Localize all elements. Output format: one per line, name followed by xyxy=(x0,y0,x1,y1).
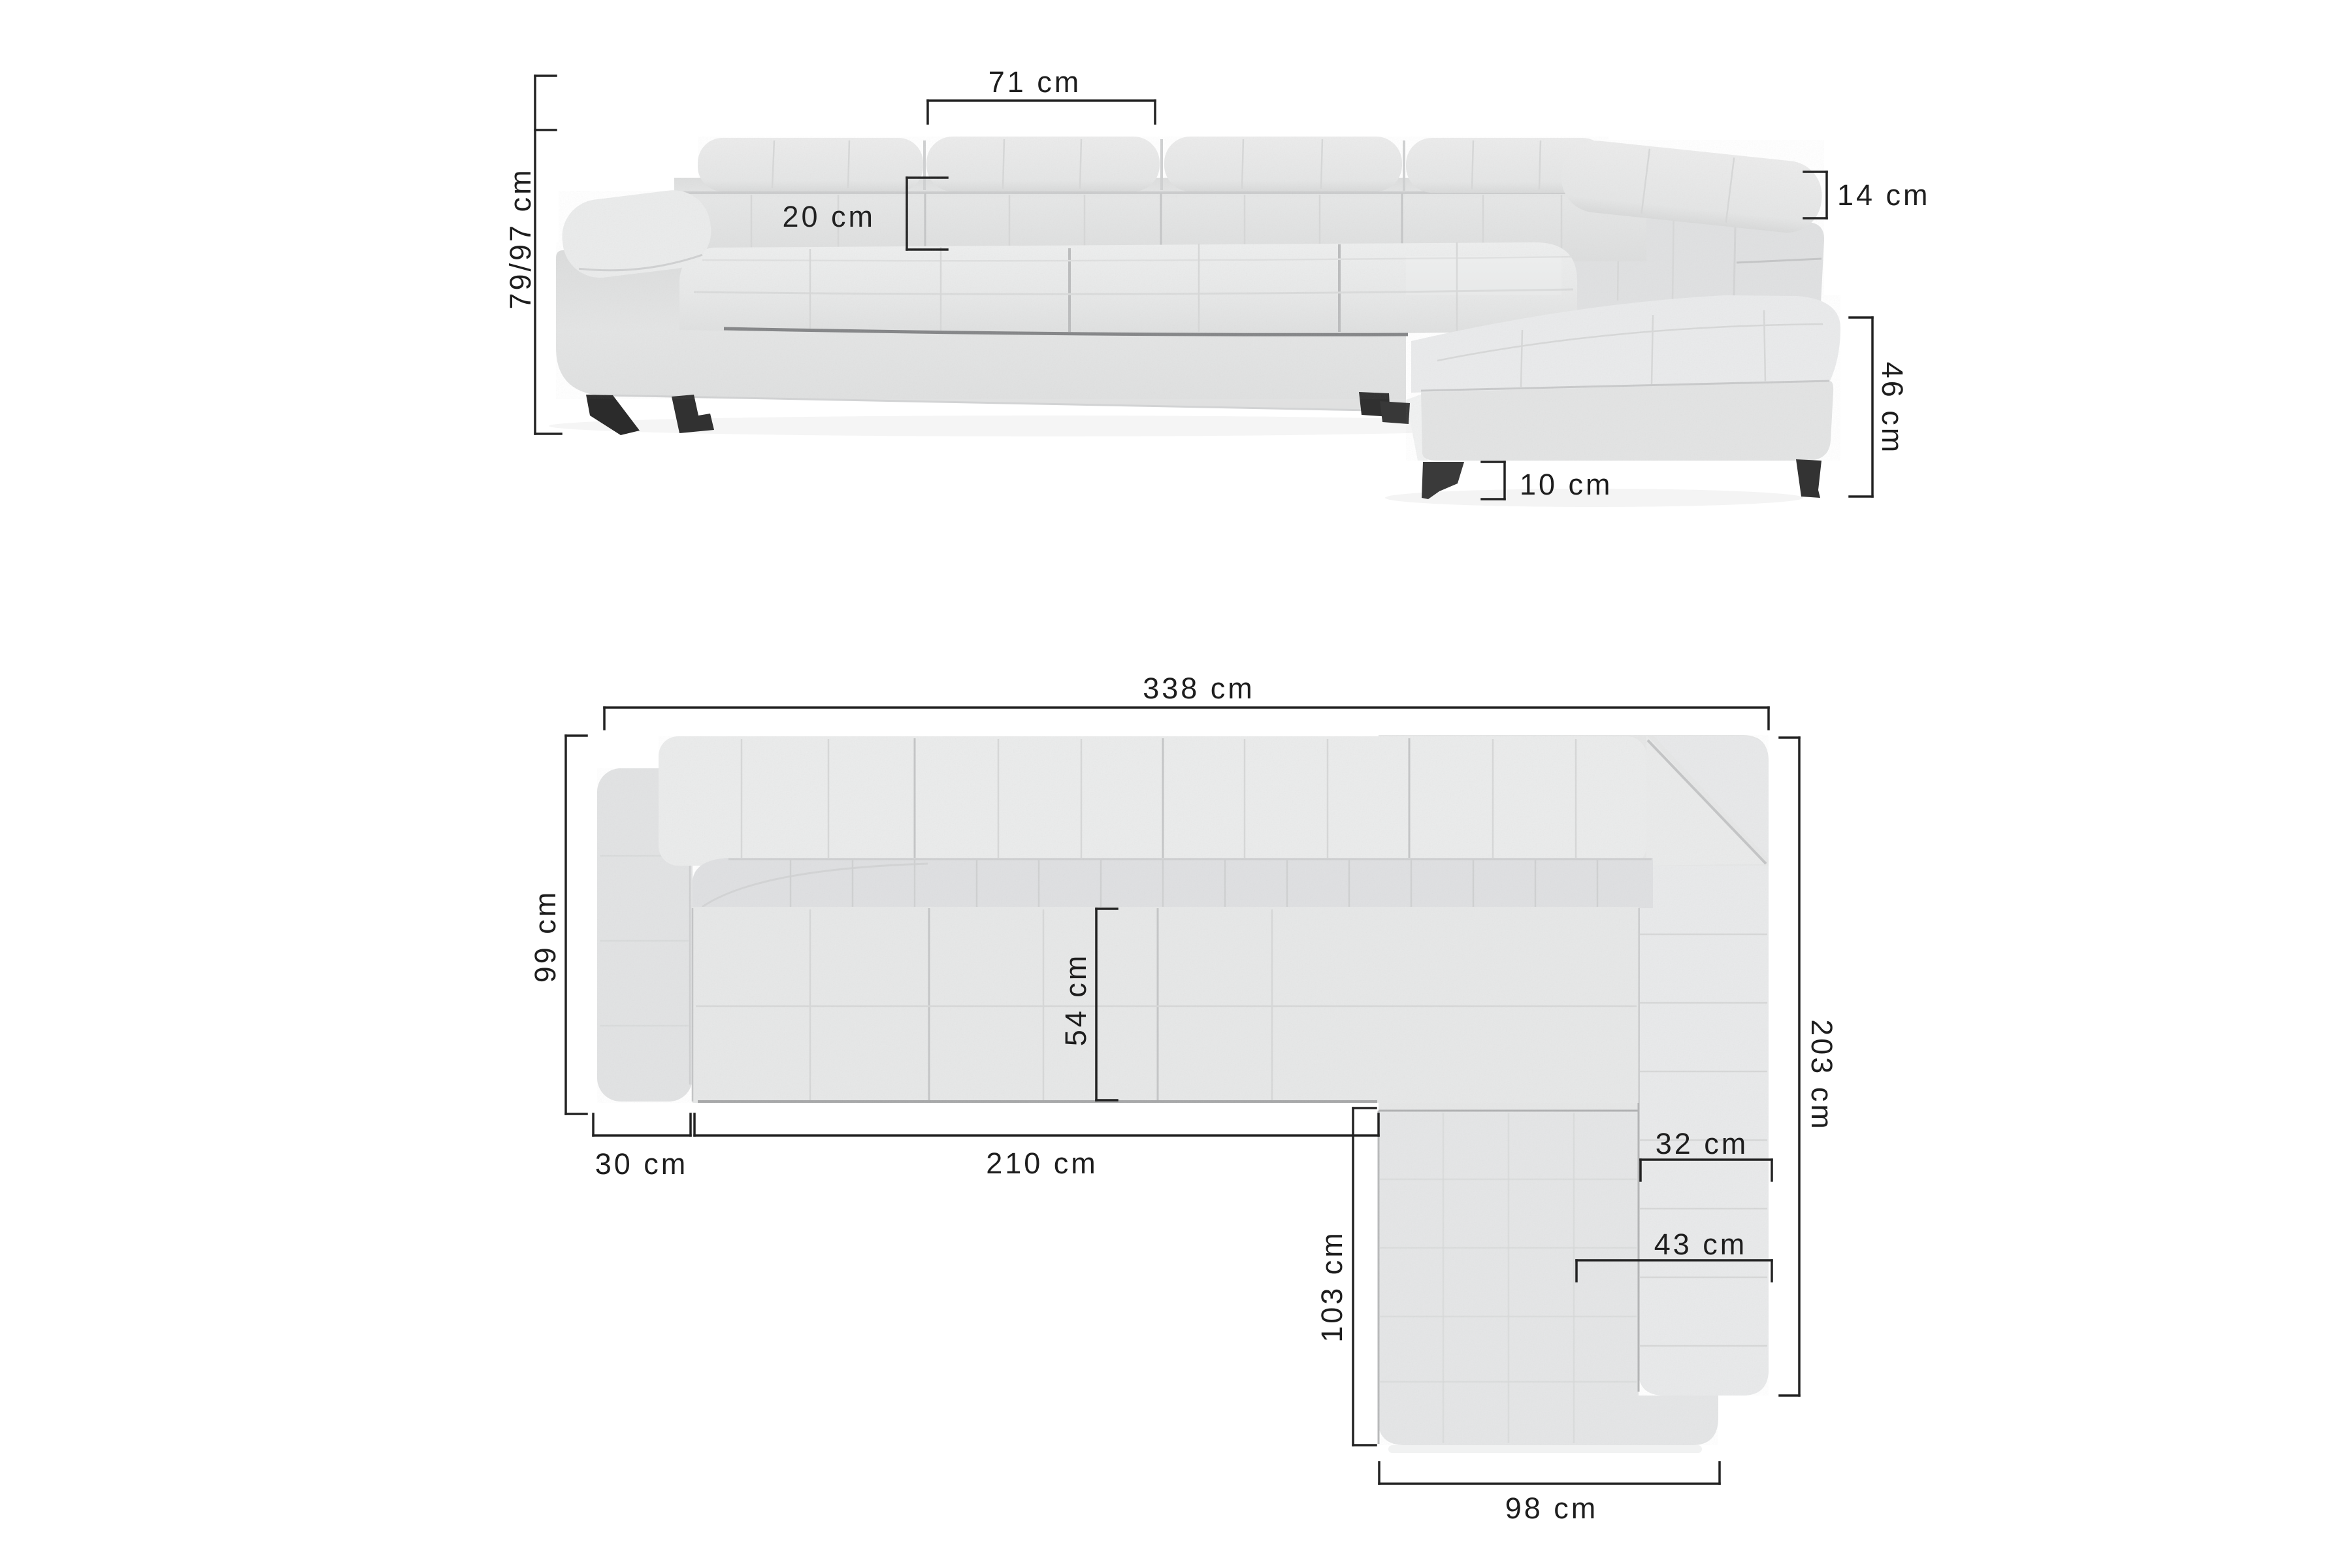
svg-text:30 cm: 30 cm xyxy=(595,1147,689,1181)
svg-text:338 cm: 338 cm xyxy=(1143,672,1255,705)
svg-text:210 cm: 210 cm xyxy=(986,1147,1098,1180)
svg-text:98 cm: 98 cm xyxy=(1505,1492,1599,1525)
svg-text:79/97 cm: 79/97 cm xyxy=(504,167,537,309)
svg-text:203 cm: 203 cm xyxy=(1805,1019,1838,1132)
svg-text:71 cm: 71 cm xyxy=(988,65,1082,99)
svg-text:32 cm: 32 cm xyxy=(1656,1127,1749,1160)
svg-text:54 cm: 54 cm xyxy=(1059,953,1092,1047)
svg-text:103 cm: 103 cm xyxy=(1315,1230,1348,1343)
svg-text:43 cm: 43 cm xyxy=(1654,1228,1748,1261)
svg-text:14 cm: 14 cm xyxy=(1837,178,1931,212)
svg-text:99 cm: 99 cm xyxy=(529,890,562,983)
svg-text:46 cm: 46 cm xyxy=(1876,362,1909,455)
svg-text:10 cm: 10 cm xyxy=(1520,468,1613,501)
